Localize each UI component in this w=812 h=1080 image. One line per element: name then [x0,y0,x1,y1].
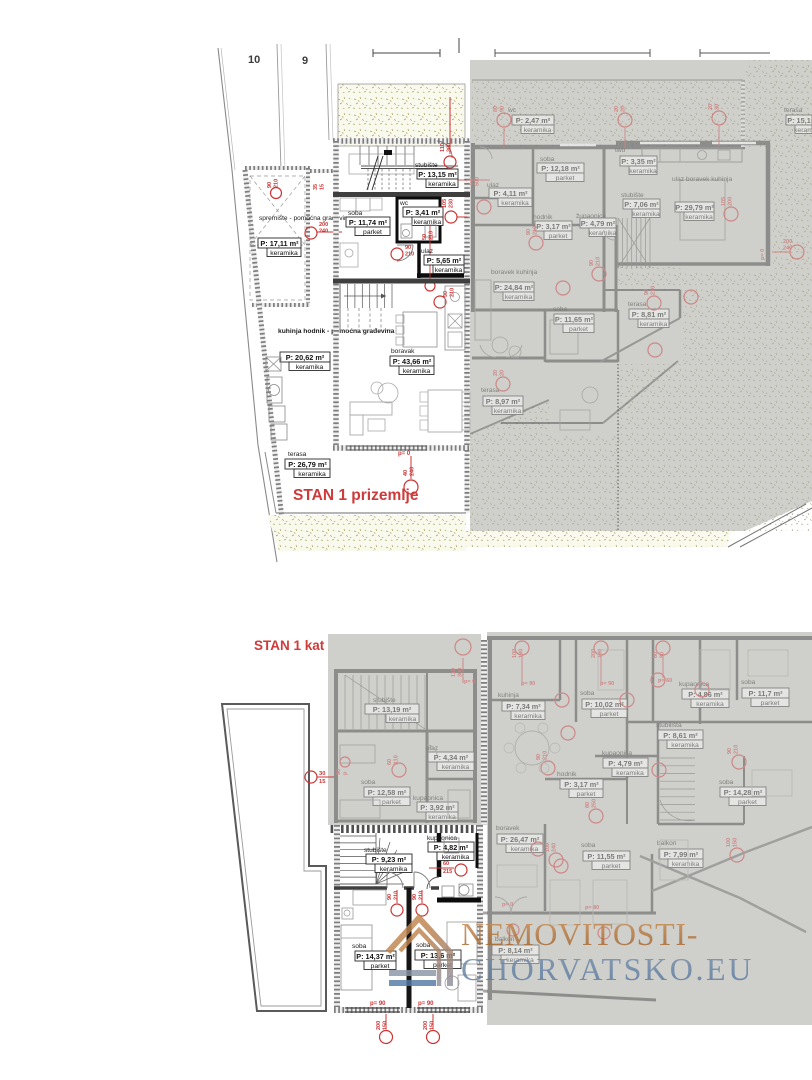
svg-text:110: 110 [451,668,457,677]
svg-text:90: 90 [336,769,342,775]
svg-text:boravek: boravek [496,825,520,832]
svg-text:terasa: terasa [288,451,307,458]
svg-text:35: 35 [313,184,319,190]
svg-text:p= 0: p= 0 [502,902,513,908]
svg-text:keramika: keramika [403,368,431,375]
svg-text:P: 4,11 m²: P: 4,11 m² [493,189,528,198]
svg-text:90: 90 [727,748,733,754]
svg-text:90: 90 [536,754,542,760]
svg-text:P: 43,66 m²: P: 43,66 m² [393,357,432,366]
svg-text:soba: soba [553,306,568,313]
svg-text:190: 190 [519,649,525,658]
svg-text:240: 240 [410,467,416,476]
svg-text:215: 215 [443,869,452,875]
svg-text:210: 210 [596,257,602,266]
svg-text:kupaonica: kupaonica [427,835,457,842]
svg-text:210: 210 [533,226,539,235]
svg-text:soba: soba [580,690,595,697]
svg-text:NEMOVITOSTI-: NEMOVITOSTI- [461,916,698,952]
svg-text:P: 15,1: P: 15,1 [787,116,811,125]
svg-text:100: 100 [726,838,732,847]
svg-text:hodnik: hodnik [533,214,553,221]
svg-text:terasa: terasa [628,301,647,308]
svg-text:50: 50 [422,234,428,240]
svg-text:parket: parket [549,233,568,240]
svg-text:100: 100 [512,649,518,658]
svg-text:10: 10 [248,54,260,66]
svg-text:P: 8,81 m²: P: 8,81 m² [632,310,667,319]
svg-text:20: 20 [614,106,620,112]
svg-text:P: 8,97 m²: P: 8,97 m² [486,397,521,406]
svg-text:230: 230 [449,199,455,208]
svg-text:P: 11,65 m²: P: 11,65 m² [555,315,594,324]
svg-text:210: 210 [394,891,400,900]
svg-text:X10: X10 [394,755,400,765]
svg-text:keramika: keramika [511,846,539,853]
svg-text:9: 9 [302,55,308,67]
svg-text:P: 4,79 m²: P: 4,79 m² [581,219,616,228]
svg-text:keramika: keramika [672,861,700,868]
svg-text:keramika: keramika [428,814,456,821]
svg-text:P: 4,82 m²: P: 4,82 m² [434,843,469,852]
svg-text:90: 90 [267,182,273,188]
svg-text:keramika: keramika [616,770,644,777]
svg-text:80: 80 [585,802,591,808]
svg-text:200: 200 [376,1021,382,1030]
svg-text:P: 3,17 m²: P: 3,17 m² [564,780,599,789]
svg-text:stubište: stubište [364,847,387,854]
svg-text:P: 9,23 m²: P: 9,23 m² [372,855,407,864]
svg-text:P: 12,58 m²: P: 12,58 m² [368,788,407,797]
svg-text:90: 90 [405,245,411,251]
svg-text:80: 80 [493,106,499,112]
svg-text:P: 4,79 m²: P: 4,79 m² [608,759,643,768]
svg-text:15: 15 [319,779,326,785]
svg-text:soba: soba [361,779,376,786]
svg-text:terasa: terasa [784,107,803,114]
svg-text:keramika: keramika [685,214,713,221]
svg-text:210: 210 [429,231,435,240]
svg-text:20: 20 [715,104,721,110]
svg-text:soba: soba [540,156,555,163]
svg-text:105: 105 [721,197,727,206]
svg-text:keramika: keramika [514,713,542,720]
svg-text:P: 13,15 m²: P: 13,15 m² [418,170,457,179]
svg-text:20: 20 [500,370,506,376]
svg-text:keramika: keramika [671,742,699,749]
svg-text:kupaonica: kupaonica [413,795,443,802]
svg-text:300: 300 [458,668,464,677]
svg-text:200: 200 [591,649,597,658]
svg-text:200: 200 [423,1021,429,1030]
svg-text:500: 500 [475,177,481,186]
svg-text:P: 24,84 m²: P: 24,84 m² [495,283,534,292]
svg-text:200: 200 [783,239,792,245]
svg-text:P: 10,02 m²: P: 10,02 m² [585,700,624,709]
svg-text:soba: soba [581,842,596,849]
svg-text:STAN 1 kat: STAN 1 kat [254,638,325,653]
svg-text:P: 5,65 m²: P: 5,65 m² [427,256,462,265]
svg-text:keramika: keramika [501,200,529,207]
svg-text:20: 20 [708,104,714,110]
svg-text:keramika: keramika [442,764,470,771]
svg-text:150: 150 [733,838,739,847]
svg-text:wc: wc [399,200,409,207]
svg-text:stubište: stubište [373,697,396,704]
svg-text:P: 4,86 m²: P: 4,86 m² [688,690,723,699]
svg-text:P: 7,06 m²: P: 7,06 m² [624,200,659,209]
svg-text:90: 90 [412,894,418,900]
svg-text:150: 150 [430,1021,436,1030]
svg-text:20: 20 [493,370,499,376]
svg-text:two: two [615,147,626,154]
svg-text:keramika: keramika [632,211,660,218]
svg-text:parket: parket [738,799,757,806]
svg-text:wc: wc [507,107,517,114]
svg-text:stubište: stubište [621,192,644,199]
svg-text:parket: parket [569,326,588,333]
svg-text:200: 200 [319,222,328,228]
svg-text:keramika: keramika [428,181,456,188]
svg-text:15: 15 [320,184,326,190]
svg-text:240: 240 [319,229,328,235]
svg-text:STAN 1 prizemlje: STAN 1 prizemlje [293,487,419,504]
svg-text:30: 30 [319,771,325,777]
svg-text:parket: parket [761,700,780,707]
svg-text:keramika: keramika [389,716,417,723]
svg-text:90: 90 [526,229,532,235]
svg-text:p= 0: p= 0 [464,679,475,685]
svg-text:P: 3,92 m²: P: 3,92 m² [420,803,455,812]
svg-text:90: 90 [387,894,393,900]
svg-text:P: 11,74 m²: P: 11,74 m² [349,218,388,227]
svg-text:keramika: keramika [298,471,326,478]
svg-text:keramika: keramika [296,364,324,371]
svg-text:300: 300 [447,143,453,152]
svg-text:P: 3,35 m²: P: 3,35 m² [621,157,656,166]
svg-text:60: 60 [443,861,449,867]
svg-text:keramika: keramika [629,168,657,175]
svg-text:p= 0: p= 0 [760,249,766,260]
svg-text:20: 20 [621,106,627,112]
svg-text:keramika: keramika [589,230,617,237]
svg-text:P: 8,61 m²: P: 8,61 m² [663,731,698,740]
svg-text:p= 60: p= 60 [658,678,672,684]
svg-text:parket: parket [602,863,621,870]
svg-text:p= 90: p= 90 [418,1001,434,1007]
svg-text:soba: soba [352,943,367,950]
svg-text:P: 26,47 m²: P: 26,47 m² [501,835,540,844]
svg-text:keramika: keramika [380,866,408,873]
svg-text:90: 90 [644,289,650,295]
svg-text:P: 7,99 m²: P: 7,99 m² [664,850,699,859]
svg-text:p= 80: p= 80 [585,905,599,911]
svg-text:parket: parket [363,229,382,236]
svg-text:keramika: keramika [442,854,470,861]
svg-text:parket: parket [382,799,401,806]
svg-text:210: 210 [734,745,740,754]
svg-text:P: 13,19 m²: P: 13,19 m² [373,705,412,714]
svg-text:90: 90 [500,106,506,112]
svg-text:P: 14,28 m²: P: 14,28 m² [724,788,763,797]
svg-text:soba: soba [741,679,756,686]
svg-text:keramika: keramika [696,701,724,708]
svg-text:P: 7,34 m²: P: 7,34 m² [506,702,541,711]
svg-text:ulaz: ulaz [421,248,433,255]
svg-text:kupaonica: kupaonica [679,681,709,688]
svg-text:parket: parket [556,175,575,182]
svg-text:parket: parket [371,963,390,970]
svg-text:105: 105 [442,199,448,208]
svg-text:stubište: stubište [415,162,438,169]
svg-text:boravek kuhinja: boravek kuhinja [491,269,538,276]
svg-text:90: 90 [660,652,666,658]
svg-text:kupaonica: kupaonica [602,750,632,757]
svg-text:soba: soba [719,779,734,786]
svg-text:P: 17,11 m²: P: 17,11 m² [260,239,299,248]
svg-text:kuhinja: kuhinja [498,692,519,699]
svg-text:90: 90 [589,260,595,266]
svg-text:keram: keram [794,127,812,134]
svg-text:250: 250 [592,799,598,808]
svg-text:40: 40 [403,470,409,476]
svg-text:210: 210 [419,891,425,900]
svg-text:210: 210 [651,286,657,295]
svg-text:keramika: keramika [270,250,298,257]
svg-text:P: 3,17 m²: P: 3,17 m² [536,222,571,231]
svg-text:90: 90 [443,291,449,297]
svg-text:keramika: keramika [524,127,552,134]
svg-text:80: 80 [653,652,659,658]
svg-text:keramika: keramika [494,408,522,415]
svg-text:P: 11,7 m²: P: 11,7 m² [748,689,783,698]
svg-text:P: 26,79 m²: P: 26,79 m² [288,460,327,469]
svg-text:60: 60 [387,759,393,765]
svg-text:p= 90: p= 90 [370,1001,386,1007]
svg-text:p= 90: p= 90 [521,681,535,687]
svg-text:P: 20,62 m²: P: 20,62 m² [286,353,325,362]
svg-text:P: 3,41 m²: P: 3,41 m² [406,208,441,217]
svg-text:P: 29,79 m²: P: 29,79 m² [675,203,714,212]
svg-text:240: 240 [552,843,558,852]
svg-text:210: 210 [274,179,280,188]
svg-text:parket: parket [577,791,596,798]
svg-text:ulaz boravek kuhinja: ulaz boravek kuhinja [672,176,732,183]
svg-text:stubilišta: stubilišta [656,722,682,729]
svg-text:p= 90: p= 90 [600,681,614,687]
svg-text:P: 2,47 m²: P: 2,47 m² [516,116,551,125]
svg-text:keramika: keramika [640,321,668,328]
svg-text:boravak: boravak [391,348,415,355]
svg-text:keramika: keramika [435,267,463,274]
svg-text:soba: soba [348,210,363,217]
svg-text:P: 12,18 m²: P: 12,18 m² [541,164,580,173]
svg-text:110: 110 [440,143,446,152]
svg-text:150: 150 [383,1021,389,1030]
svg-text:p= 0: p= 0 [398,451,411,457]
svg-text:parket: parket [600,711,619,718]
svg-text:P: 11,55 m²: P: 11,55 m² [587,852,626,861]
svg-text:210: 210 [405,252,414,258]
svg-text:hodnik: hodnik [557,771,577,778]
svg-text:P: 4,34 m²: P: 4,34 m² [434,753,469,762]
svg-text:200: 200 [728,197,734,206]
svg-text:CHORVATSKO.EU: CHORVATSKO.EU [461,951,754,987]
svg-text:keramika: keramika [505,294,533,301]
svg-text:100: 100 [545,843,551,852]
